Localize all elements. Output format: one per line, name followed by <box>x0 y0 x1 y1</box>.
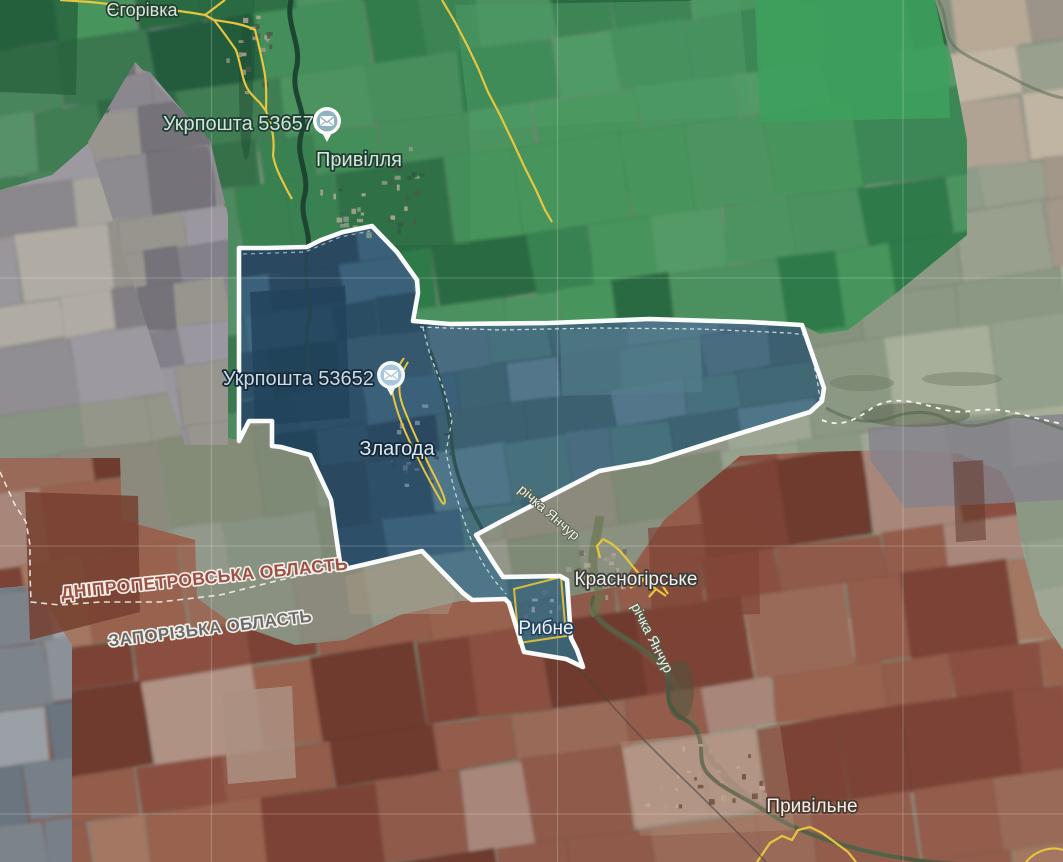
svg-text:Привільне: Привільне <box>766 796 857 817</box>
svg-text:Привілля: Привілля <box>316 149 402 171</box>
svg-text:Укрпошта 53652: Укрпошта 53652 <box>223 368 374 390</box>
svg-text:Укрпошта 53657: Укрпошта 53657 <box>163 113 314 135</box>
svg-text:Злагода: Злагода <box>359 438 435 460</box>
svg-text:Рибне: Рибне <box>518 618 573 639</box>
svg-text:Єгорівка: Єгорівка <box>107 0 179 20</box>
svg-text:Красногірське: Красногірське <box>575 569 698 590</box>
